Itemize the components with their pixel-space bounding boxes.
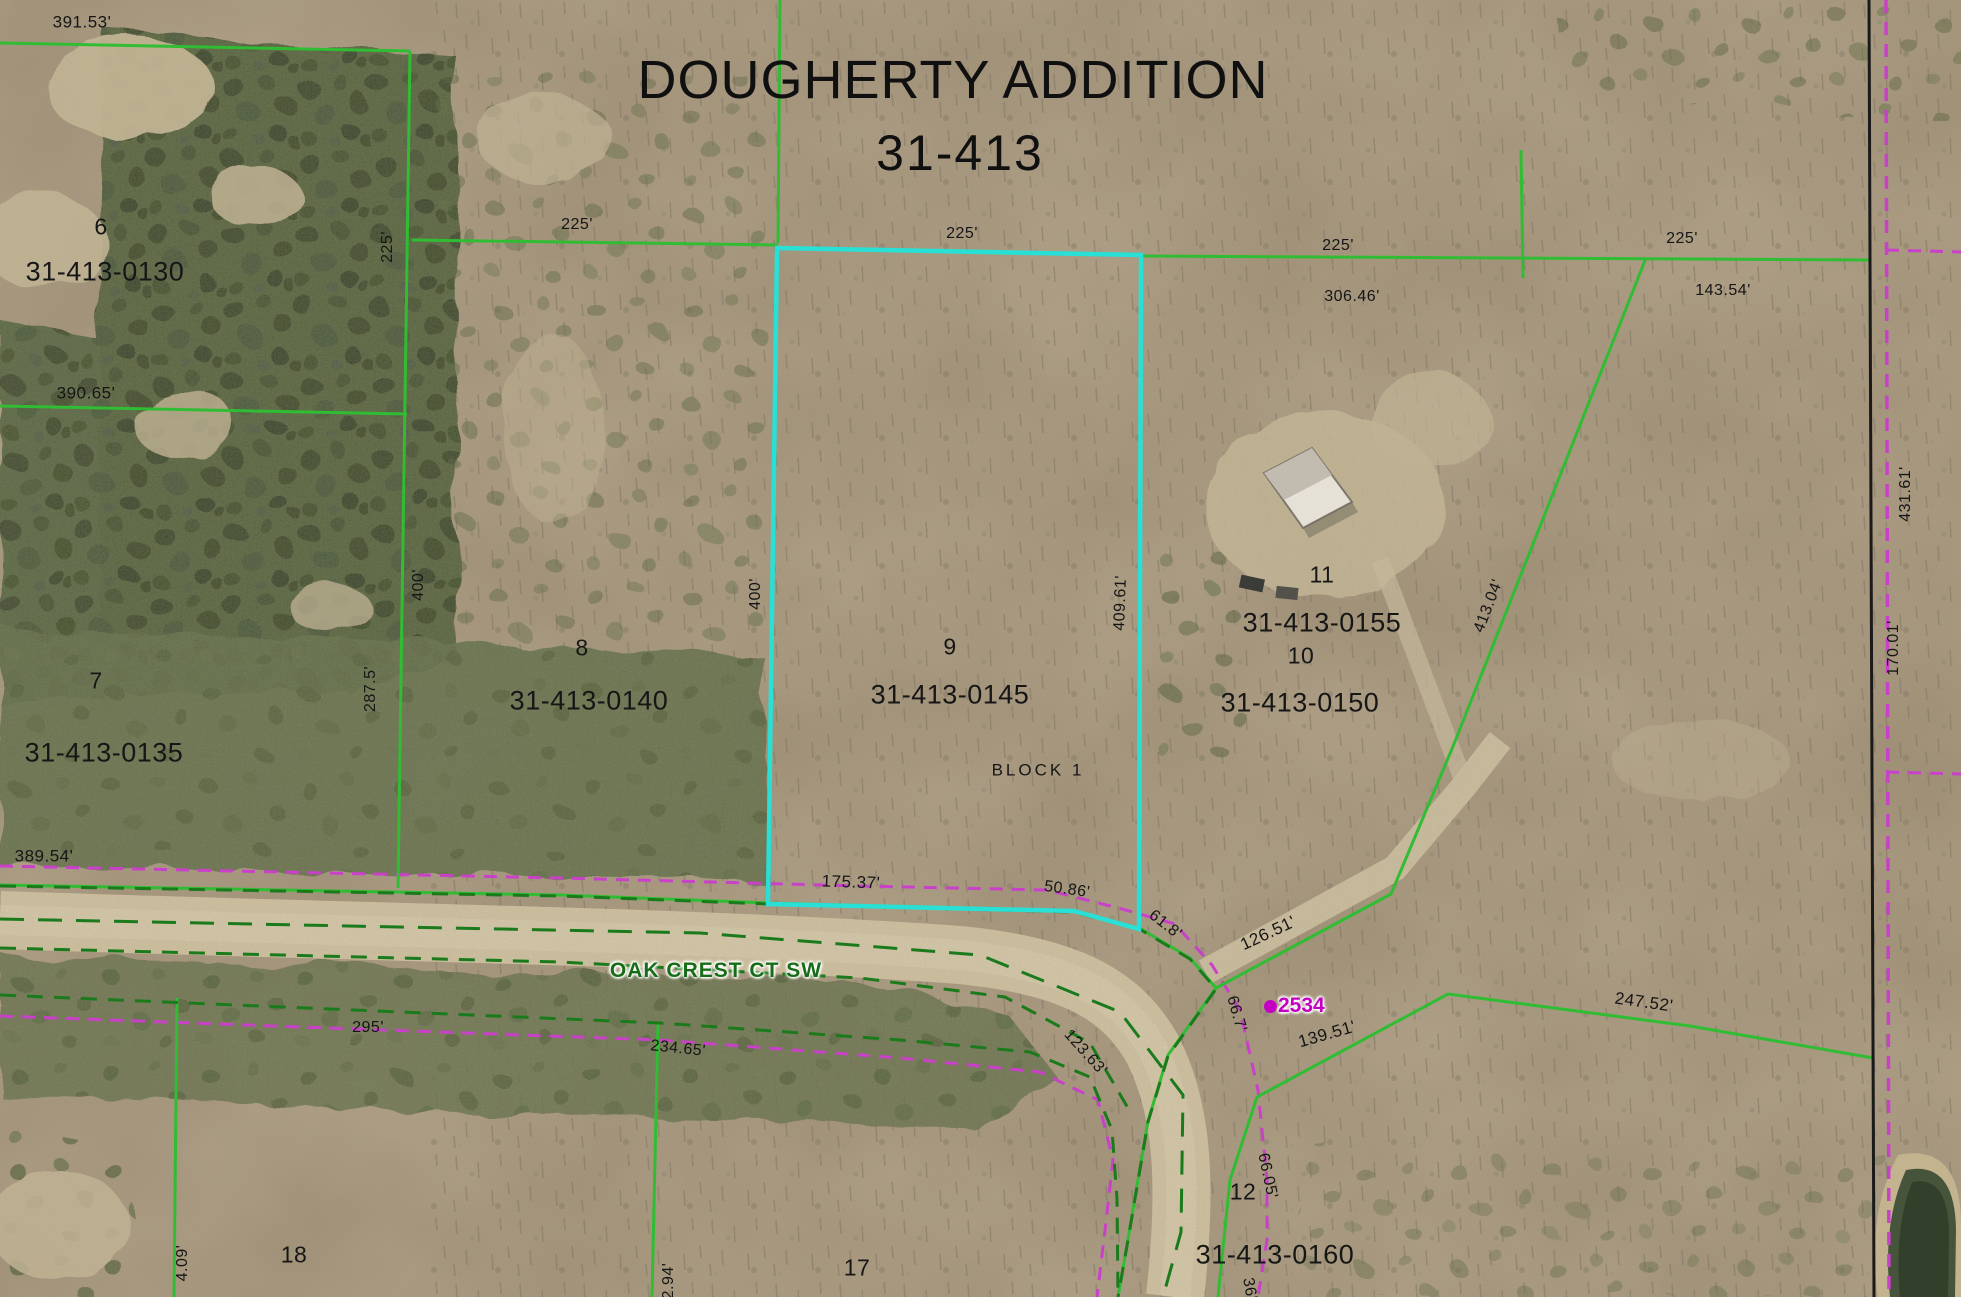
parcel-31-413-0160: 31-413-0160 [1196, 1242, 1355, 1269]
plat-title: DOUGHERTY ADDITION [637, 53, 1268, 107]
lot-18: 18 [281, 1244, 308, 1267]
parcel-31-413-0145: 31-413-0145 [871, 682, 1030, 709]
dim-287-5: 287.5' [363, 666, 379, 712]
lot-8: 8 [575, 637, 588, 660]
dim-409-61: 409.61' [1112, 575, 1130, 631]
address-marker-2534[interactable]: 2534 [1264, 994, 1325, 1018]
dim-306-46: 306.46' [1324, 289, 1380, 305]
parcel-31-413-0140: 31-413-0140 [510, 688, 669, 715]
dim-295: 295' [352, 1020, 384, 1036]
dim-391-53: 391.53' [53, 14, 112, 31]
grain-texture [0, 0, 1961, 1297]
dim-400-a: 400' [411, 569, 427, 601]
plat-map-canvas[interactable]: DOUGHERTY ADDITION 31-413 OAK CREST CT S… [0, 0, 1961, 1297]
dim-36: 36' [1239, 1277, 1259, 1297]
lot-11: 11 [1310, 564, 1335, 587]
dim-175-37: 175.37' [821, 872, 880, 891]
address-number: 2534 [1278, 994, 1325, 1017]
parcel-31-413-0150: 31-413-0150 [1221, 690, 1380, 717]
dim-390-65: 390.65' [57, 385, 116, 402]
dim-143-54: 143.54' [1695, 283, 1751, 299]
parcel-31-413-0155: 31-413-0155 [1243, 610, 1402, 637]
road-name-label: OAK CREST CT SW [610, 959, 822, 983]
dim-170-01: 170.01' [1886, 620, 1902, 676]
dim-225-a: 225' [380, 231, 396, 263]
dim-389-54: 389.54' [15, 848, 74, 865]
parcel-31-413-0130: 31-413-0130 [26, 259, 185, 286]
lot-9: 9 [943, 636, 956, 659]
parcel-31-413-0135: 31-413-0135 [25, 740, 184, 767]
dim-225-b: 225' [561, 217, 593, 233]
address-point-icon [1264, 1000, 1277, 1013]
dim-431-61: 431.61' [1898, 466, 1914, 522]
dim-225-c: 225' [946, 226, 978, 242]
dim-2-94: 2.94' [661, 1263, 677, 1297]
plat-number: 31-413 [876, 128, 1044, 178]
block-label: BLOCK 1 [992, 762, 1085, 779]
lot-10: 10 [1288, 645, 1315, 668]
aerial-basemap [0, 0, 1961, 1297]
lot-17: 17 [844, 1257, 871, 1280]
lot-12: 12 [1230, 1181, 1257, 1204]
dim-225-e: 225' [1666, 231, 1698, 247]
dim-4-09: 4.09' [175, 1245, 191, 1282]
dim-400-b: 400' [748, 578, 764, 610]
dim-225-d: 225' [1322, 238, 1354, 254]
lot-7: 7 [89, 670, 102, 693]
lot-6: 6 [94, 216, 107, 239]
